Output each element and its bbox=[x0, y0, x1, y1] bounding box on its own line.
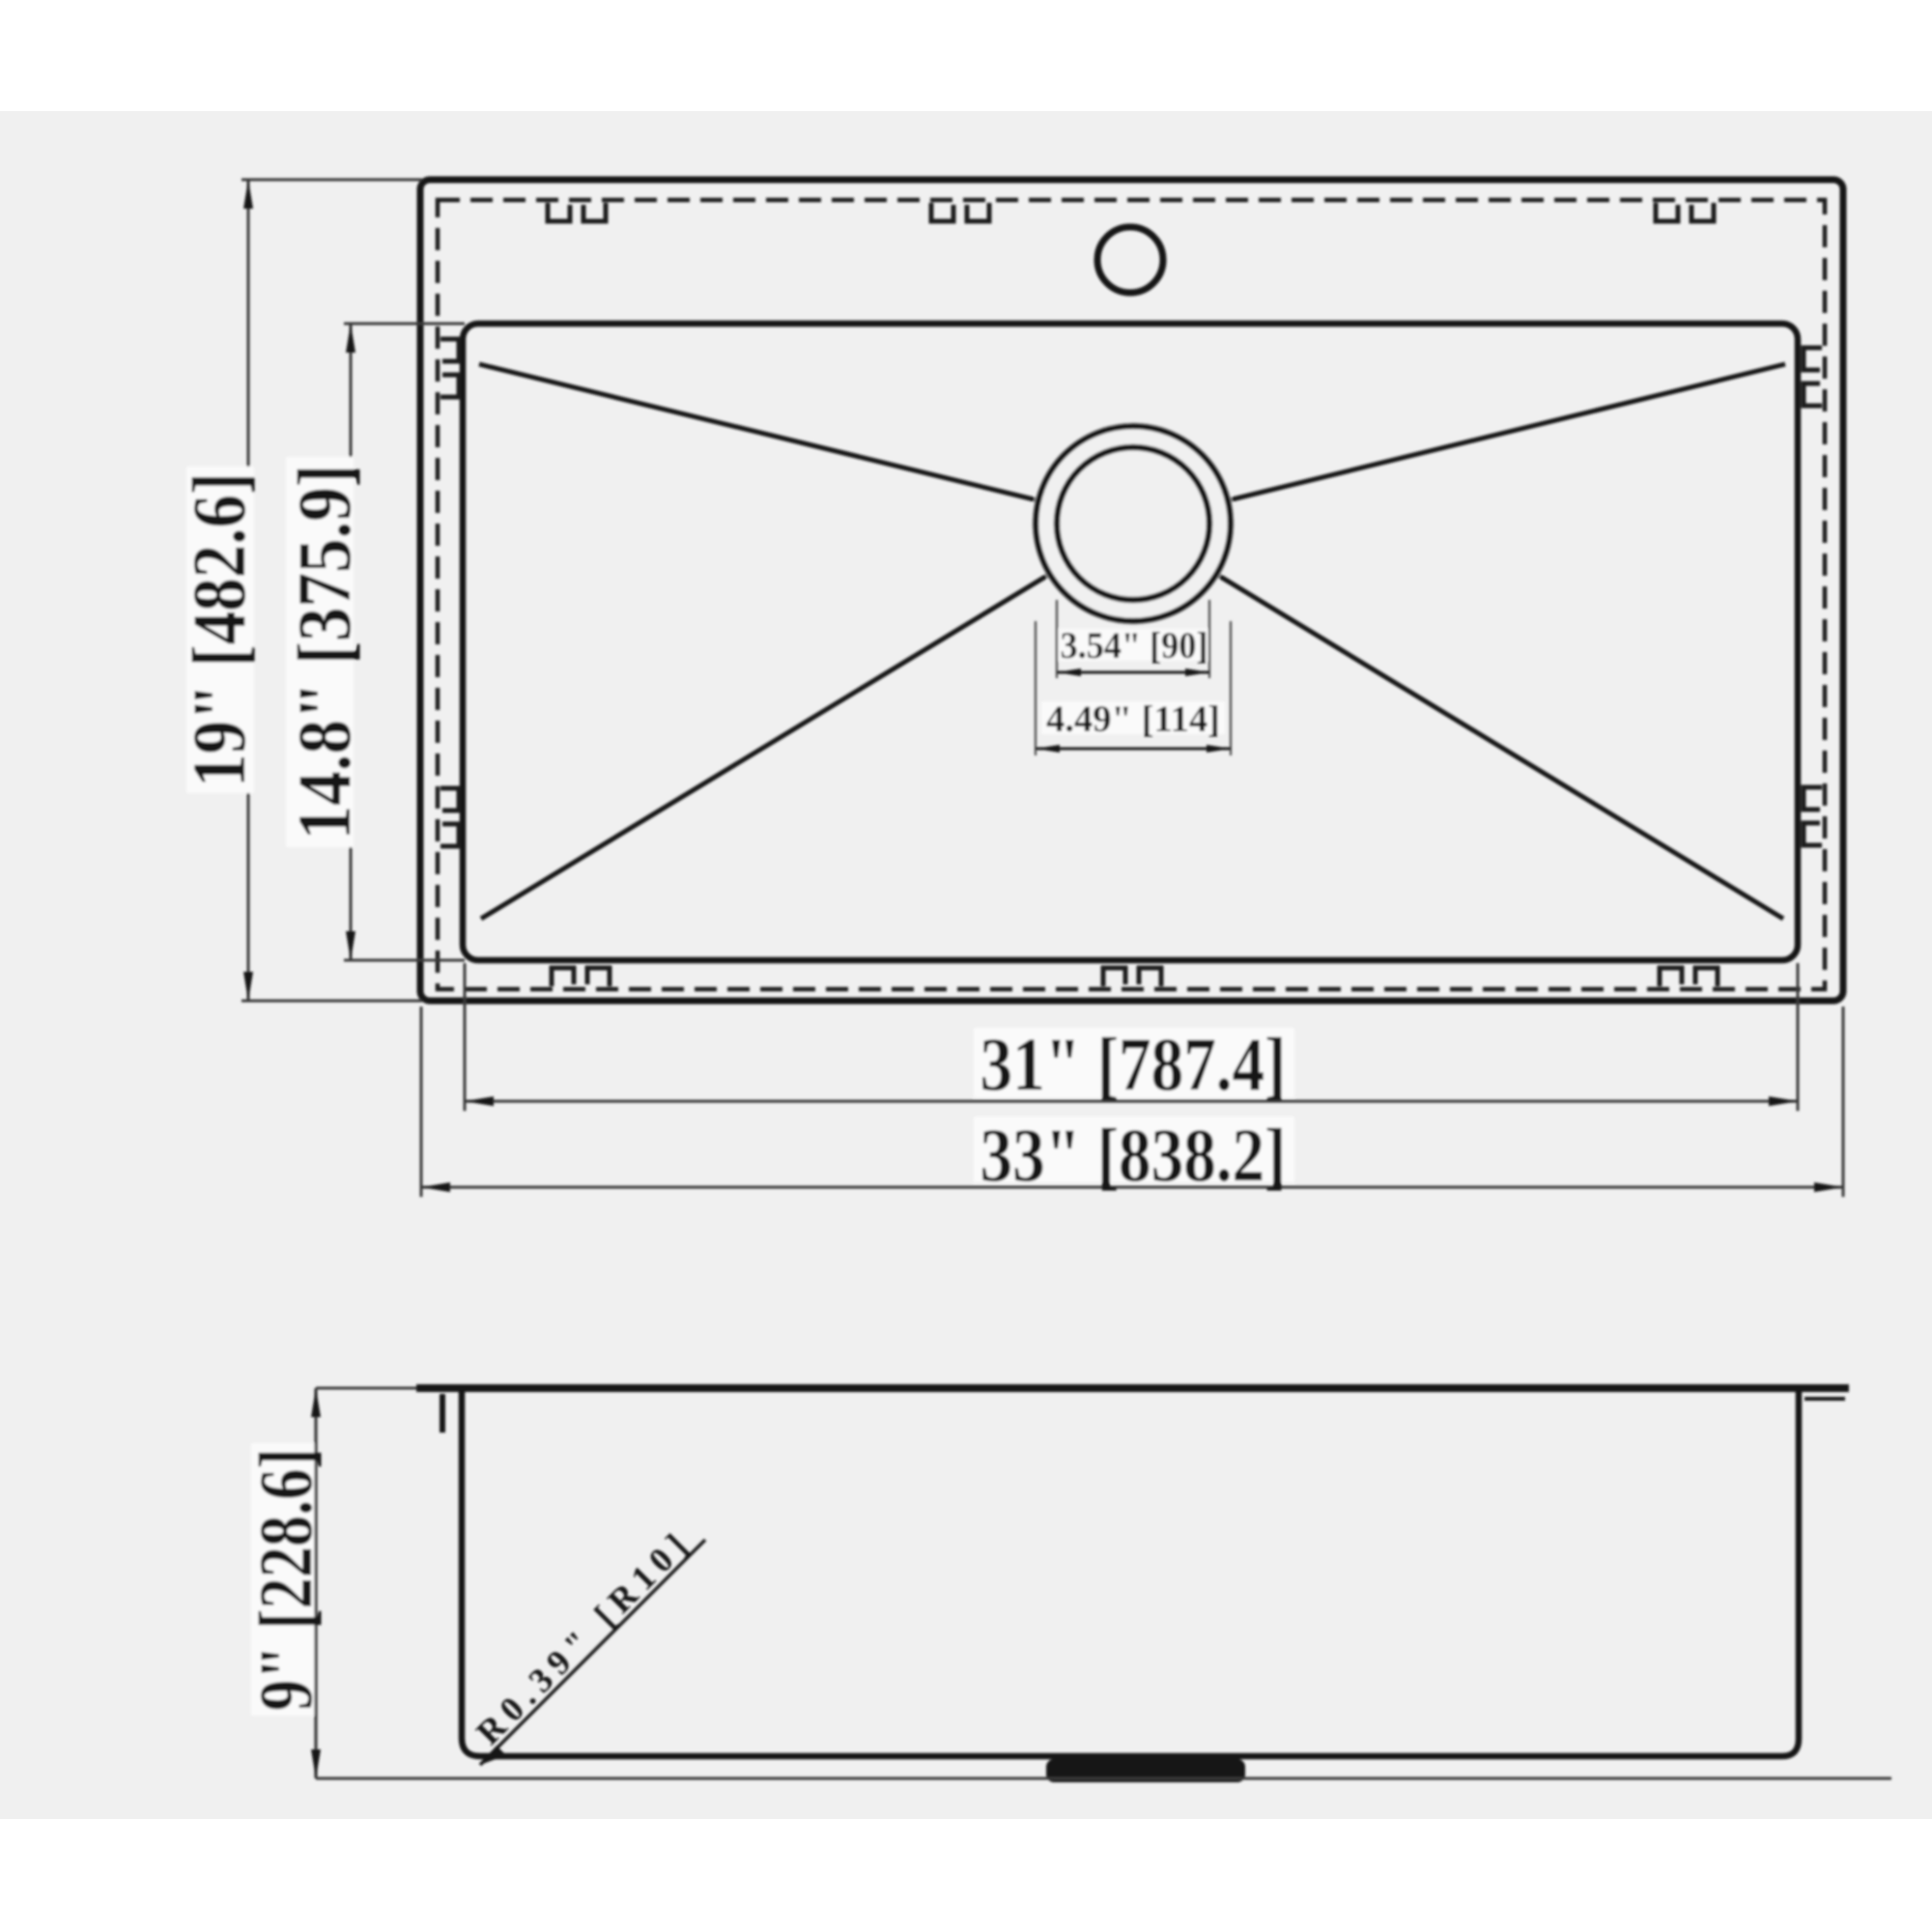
svg-text:3.54" [90]: 3.54" [90] bbox=[1061, 625, 1208, 667]
svg-text:4.49" [114]: 4.49" [114] bbox=[1046, 698, 1220, 740]
svg-text:14.8" [375.9]: 14.8" [375.9] bbox=[282, 465, 366, 840]
svg-text:33" [838.2]: 33" [838.2] bbox=[980, 1113, 1287, 1197]
svg-text:19" [482.6]: 19" [482.6] bbox=[177, 472, 261, 787]
svg-text:9" [228.6]: 9" [228.6] bbox=[243, 1448, 327, 1711]
svg-text:31" [787.4]: 31" [787.4] bbox=[980, 1022, 1287, 1106]
